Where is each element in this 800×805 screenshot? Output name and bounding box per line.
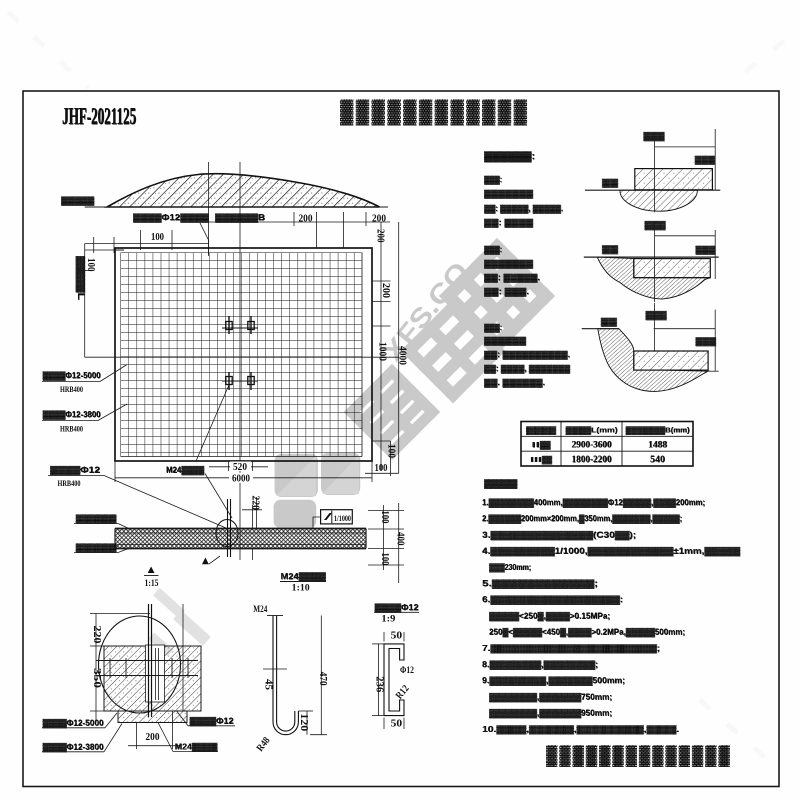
svg-text:▓▓▓▓L: ▓▓▓▓L xyxy=(75,256,85,300)
svg-text:1:9: 1:9 xyxy=(381,615,395,625)
svg-text:II▓: II▓ xyxy=(532,440,552,450)
svg-text:7.▓▓▓▓▓▓▓▓▓▓▓▓▓▓▓▓▓▓▓▓▓▓▓;: 7.▓▓▓▓▓▓▓▓▓▓▓▓▓▓▓▓▓▓▓▓▓▓▓; xyxy=(482,644,660,654)
svg-text:120: 120 xyxy=(298,713,309,731)
svg-text:100: 100 xyxy=(379,553,390,566)
svg-text:▓▓▓▓: ▓▓▓▓ xyxy=(526,426,557,436)
svg-text:▓▓: ▓▓ xyxy=(602,178,618,188)
svg-text:2.▓▓▓▓▓▓200mm×200mm,▓350mm,▓▓▓: 2.▓▓▓▓▓▓200mm×200mm,▓350mm,▓▓▓▓▓▓▓,▓▓▓▓▓… xyxy=(482,515,682,525)
svg-text:220: 220 xyxy=(249,496,260,511)
svg-text:45: 45 xyxy=(263,679,274,690)
svg-text:470: 470 xyxy=(317,672,328,686)
svg-text:▓▓▓:: ▓▓▓: xyxy=(484,245,502,255)
svg-text:10.▓▓▓▓,▓▓▓▓▓▓,▓▓▓▓▓▓▓▓▓,▓▓▓▓.: 10.▓▓▓▓,▓▓▓▓▓▓,▓▓▓▓▓▓▓▓▓,▓▓▓▓. xyxy=(482,725,679,735)
svg-text:1488: 1488 xyxy=(648,441,667,451)
svg-text:▓▓: ▓▓▓.: ▓▓: ▓▓▓. xyxy=(484,287,529,297)
svg-text:▓▓▓▓▓<250▓,▓▓▓▓>0.15MPa;: ▓▓▓▓▓<250▓,▓▓▓▓>0.15MPa; xyxy=(489,612,610,622)
svg-text:1:15: 1:15 xyxy=(145,579,159,589)
svg-text:2900-3600: 2900-3600 xyxy=(572,441,612,451)
svg-text:▓▓▓▓▓▓▓▓,▓▓▓▓▓▓▓950mm;: ▓▓▓▓▓▓▓▓,▓▓▓▓▓▓▓950mm; xyxy=(489,709,612,719)
svg-text:6000: 6000 xyxy=(232,474,250,485)
svg-text:HRB400: HRB400 xyxy=(60,424,83,434)
svg-text:▓▓▓:: ▓▓▓: xyxy=(484,175,502,185)
svg-text:4000: 4000 xyxy=(397,346,408,365)
svg-text:▓▓▓▓▓▓▓: ▓▓▓▓▓▓▓ xyxy=(484,189,533,199)
svg-text:200: 200 xyxy=(299,213,313,225)
svg-text:1:10: 1:10 xyxy=(292,584,310,594)
svg-text:▓▓: ▓▓▓▓▓.: ▓▓: ▓▓▓▓▓. xyxy=(484,273,540,283)
svg-text:▓▓: ▓▓ xyxy=(601,317,617,327)
svg-text:100: 100 xyxy=(151,232,164,243)
svg-text:220: 220 xyxy=(91,626,102,644)
svg-text:▓▓▓▓Φ12-5000: ▓▓▓▓Φ12-5000 xyxy=(43,371,102,381)
svg-text:M24: M24 xyxy=(253,605,267,615)
svg-text:▓▓: ▓▓▓▓: ▓▓: ▓▓▓▓ xyxy=(484,218,533,228)
svg-text:▓▓. ▓▓▓▓▓▓.: ▓▓. ▓▓▓▓▓▓. xyxy=(484,378,545,388)
svg-text:1.▓▓▓▓▓▓▓▓400mm,▓▓▓▓▓▓▓▓Φ12▓▓▓: 1.▓▓▓▓▓▓▓▓400mm,▓▓▓▓▓▓▓▓Φ12▓▓▓▓▓,▓▓▓▓200… xyxy=(482,498,705,508)
svg-text:▓▓▓▓Φ12▓▓▓▓: ▓▓▓▓Φ12▓▓▓▓ xyxy=(133,213,209,223)
svg-text:100: 100 xyxy=(375,463,388,474)
svg-text:520: 520 xyxy=(233,462,247,473)
svg-text:3.▓▓▓▓▓▓▓▓▓▓▓▓▓▓(C30▓▓);: 3.▓▓▓▓▓▓▓▓▓▓▓▓▓▓(C30▓▓); xyxy=(482,531,636,541)
svg-text:JHF-2021125: JHF-2021125 xyxy=(63,104,137,130)
svg-text:III▓: III▓ xyxy=(530,455,553,465)
svg-text:100: 100 xyxy=(379,511,390,524)
svg-text:200: 200 xyxy=(146,732,160,743)
svg-text:▓▓▓: ▓▓▓ xyxy=(645,221,666,231)
svg-text:▓▓▓: ▓▓▓ xyxy=(696,337,717,347)
svg-text:▓▓: ▓▓▓▓▓▓▓▓▓▓.: ▓▓: ▓▓▓▓▓▓▓▓▓▓. xyxy=(484,350,570,360)
svg-text:▓▓▓▓▓: ▓▓▓▓▓ xyxy=(61,196,94,206)
svg-text:6.▓▓▓▓▓▓▓▓▓▓▓▓▓▓▓▓▓▓:: 6.▓▓▓▓▓▓▓▓▓▓▓▓▓▓▓▓▓▓: xyxy=(482,596,623,606)
svg-text:▓ ▓ ▓ ▓ ▓ ▓ ▓ ▓ ▓ ▓ ▓ ▓ ▓ ▓: ▓ ▓ ▓ ▓ ▓ ▓ ▓ ▓ ▓ ▓ ▓ ▓ ▓ ▓ xyxy=(548,745,730,767)
svg-text:5.▓▓▓▓▓▓▓▓▓▓▓▓;: 5.▓▓▓▓▓▓▓▓▓▓▓▓; xyxy=(482,579,598,589)
svg-text:▓▓▓▓▓▓▓B(mm): ▓▓▓▓▓▓▓B(mm) xyxy=(626,426,691,436)
svg-text:9.▓▓▓▓▓▓▓▓▓,▓▓▓▓▓▓▓500mm;: 9.▓▓▓▓▓▓▓▓▓,▓▓▓▓▓▓▓500mm; xyxy=(482,677,625,687)
svg-text:▓▓▓: ▓▓▓ xyxy=(695,155,715,165)
svg-text:▓▓▓▓▓: ▓▓▓▓▓ xyxy=(76,543,117,553)
svg-text:▓ ▓ ▓ ▓ ▓ ▓ ▓ ▓ ▓ ▓ ▓ ▓: ▓ ▓ ▓ ▓ ▓ ▓ ▓ ▓ ▓ ▓ ▓ ▓ xyxy=(342,98,527,126)
svg-text:350: 350 xyxy=(91,668,102,688)
svg-text:540: 540 xyxy=(650,455,665,465)
svg-text:1/1000: 1/1000 xyxy=(334,513,351,523)
svg-text:▓▓▓▓: ▓▓▓▓ xyxy=(484,478,518,489)
svg-text:▓▓▓▓Φ12: ▓▓▓▓Φ12 xyxy=(50,466,101,476)
svg-text:▓▓▓▓▓▓: ▓▓▓▓▓▓ xyxy=(484,336,526,346)
svg-text:▓▓▓▓L(mm): ▓▓▓▓L(mm) xyxy=(566,426,619,436)
svg-text:▓▓▓230mm;: ▓▓▓230mm; xyxy=(489,563,531,573)
svg-text:1000: 1000 xyxy=(377,342,388,361)
svg-text:50: 50 xyxy=(391,631,403,642)
svg-text:HRB400: HRB400 xyxy=(58,478,81,488)
svg-text:▓▓▓▓▓▓▓▓,▓▓▓▓▓▓▓750mm;: ▓▓▓▓▓▓▓▓,▓▓▓▓▓▓▓750mm; xyxy=(489,693,612,703)
svg-text:100: 100 xyxy=(386,444,397,458)
svg-text:▓▓▓▓▓▓▓: ▓▓▓▓▓▓▓ xyxy=(484,259,533,269)
svg-text:100: 100 xyxy=(85,258,96,272)
svg-text:50: 50 xyxy=(391,719,403,730)
svg-text:▓▓▓▓▓▓B: ▓▓▓▓▓▓B xyxy=(215,213,265,223)
svg-text:1800-2200: 1800-2200 xyxy=(572,455,612,465)
svg-text:▓▓▓: ▓▓▓ xyxy=(696,245,716,255)
svg-text:250▓<▓▓▓▓▓<450▓,▓▓▓▓>0.2MPa,▓▓: 250▓<▓▓▓▓▓<450▓,▓▓▓▓>0.2MPa,▓▓▓▓▓500mm; xyxy=(489,628,685,638)
svg-text:▓▓▓:: ▓▓▓: xyxy=(484,323,502,333)
svg-text:4.▓▓▓▓▓▓▓▓▓1/1000,▓▓▓▓▓▓▓▓▓▓▓▓: 4.▓▓▓▓▓▓▓▓▓1/1000,▓▓▓▓▓▓▓▓▓▓▓▓±1mm,▓▓▓▓▓ xyxy=(482,547,740,557)
svg-text:▓▓: ▓▓▓▓▓, ▓▓▓▓▓.: ▓▓: ▓▓▓▓▓, ▓▓▓▓▓. xyxy=(484,204,563,214)
svg-text:M24▓▓▓▓: M24▓▓▓▓ xyxy=(281,571,327,582)
svg-text:236: 236 xyxy=(374,676,385,692)
svg-text:▓▓▓▓Φ12-3800: ▓▓▓▓Φ12-3800 xyxy=(43,410,102,420)
svg-text:M24▓▓▓▓: M24▓▓▓▓ xyxy=(166,466,204,476)
svg-text:▓▓▓▓▓▓:: ▓▓▓▓▓▓: xyxy=(484,151,535,162)
svg-text:▓▓▓: ▓▓▓ xyxy=(644,132,665,142)
svg-text:200: 200 xyxy=(380,283,391,298)
svg-text:▓▓▓: ▓▓▓ xyxy=(646,311,667,321)
svg-text:200: 200 xyxy=(375,229,386,243)
svg-text:200: 200 xyxy=(372,213,386,225)
svg-text:▓▓▓▓▓: ▓▓▓▓▓ xyxy=(76,514,117,524)
svg-text:Φ12: Φ12 xyxy=(400,666,414,676)
svg-text:▓▓: ▓▓▓▓, ▓▓▓▓▓▓▓: ▓▓: ▓▓▓▓, ▓▓▓▓▓▓▓ xyxy=(484,364,570,374)
svg-text:▓▓: ▓▓ xyxy=(602,245,618,255)
svg-text:400: 400 xyxy=(394,532,405,546)
svg-text:8.▓▓▓▓▓▓▓▓,▓▓▓▓▓▓▓▓;: 8.▓▓▓▓▓▓▓▓,▓▓▓▓▓▓▓▓; xyxy=(482,660,598,670)
svg-text:HRB400: HRB400 xyxy=(60,384,83,394)
